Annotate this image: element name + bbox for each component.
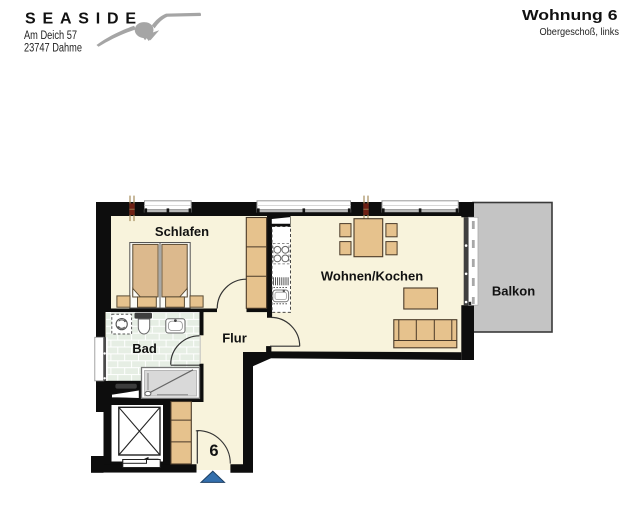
svg-text:Balkon: Balkon <box>492 284 535 299</box>
svg-text:Am Deich 57: Am Deich 57 <box>24 30 77 42</box>
svg-text:SEASIDE: SEASIDE <box>25 11 143 28</box>
svg-text:Flur: Flur <box>222 331 247 346</box>
svg-text:Schlafen: Schlafen <box>155 224 209 239</box>
svg-text:23747 Dahme: 23747 Dahme <box>24 42 82 54</box>
svg-text:Wohnen/Kochen: Wohnen/Kochen <box>321 269 423 284</box>
svg-text:Obergeschoß, links: Obergeschoß, links <box>540 27 620 38</box>
svg-text:6: 6 <box>209 442 218 460</box>
svg-text:Wohnung 6: Wohnung 6 <box>522 8 618 24</box>
svg-text:Bad: Bad <box>132 341 157 356</box>
